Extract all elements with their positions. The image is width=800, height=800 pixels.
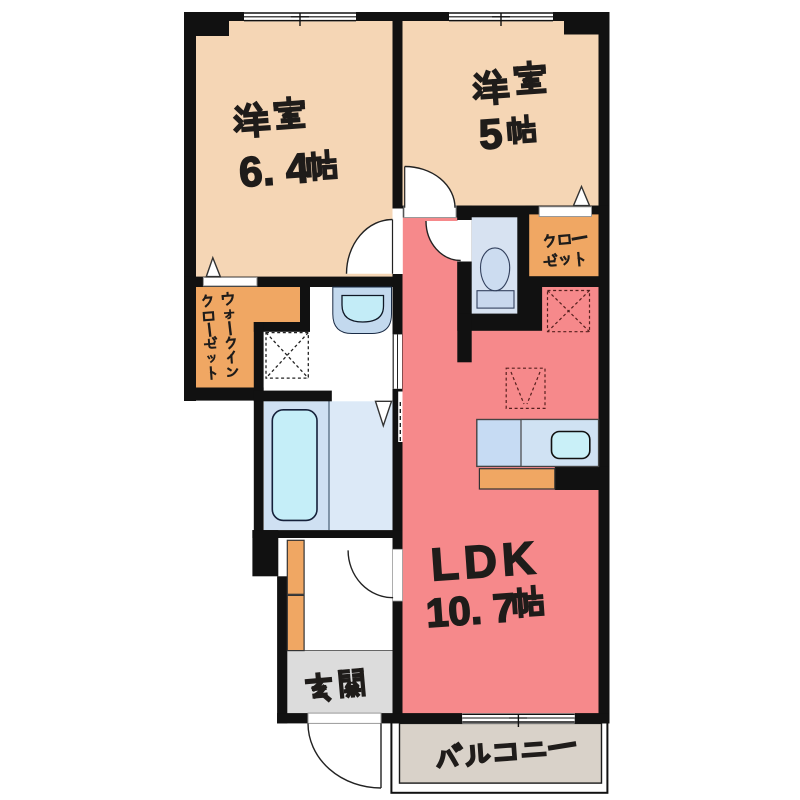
svg-text:10. 7: 10. 7 [425, 586, 517, 636]
svg-text:6. 4: 6. 4 [238, 144, 312, 196]
svg-text:LDK: LDK [429, 531, 542, 591]
svg-text:5: 5 [477, 110, 504, 159]
